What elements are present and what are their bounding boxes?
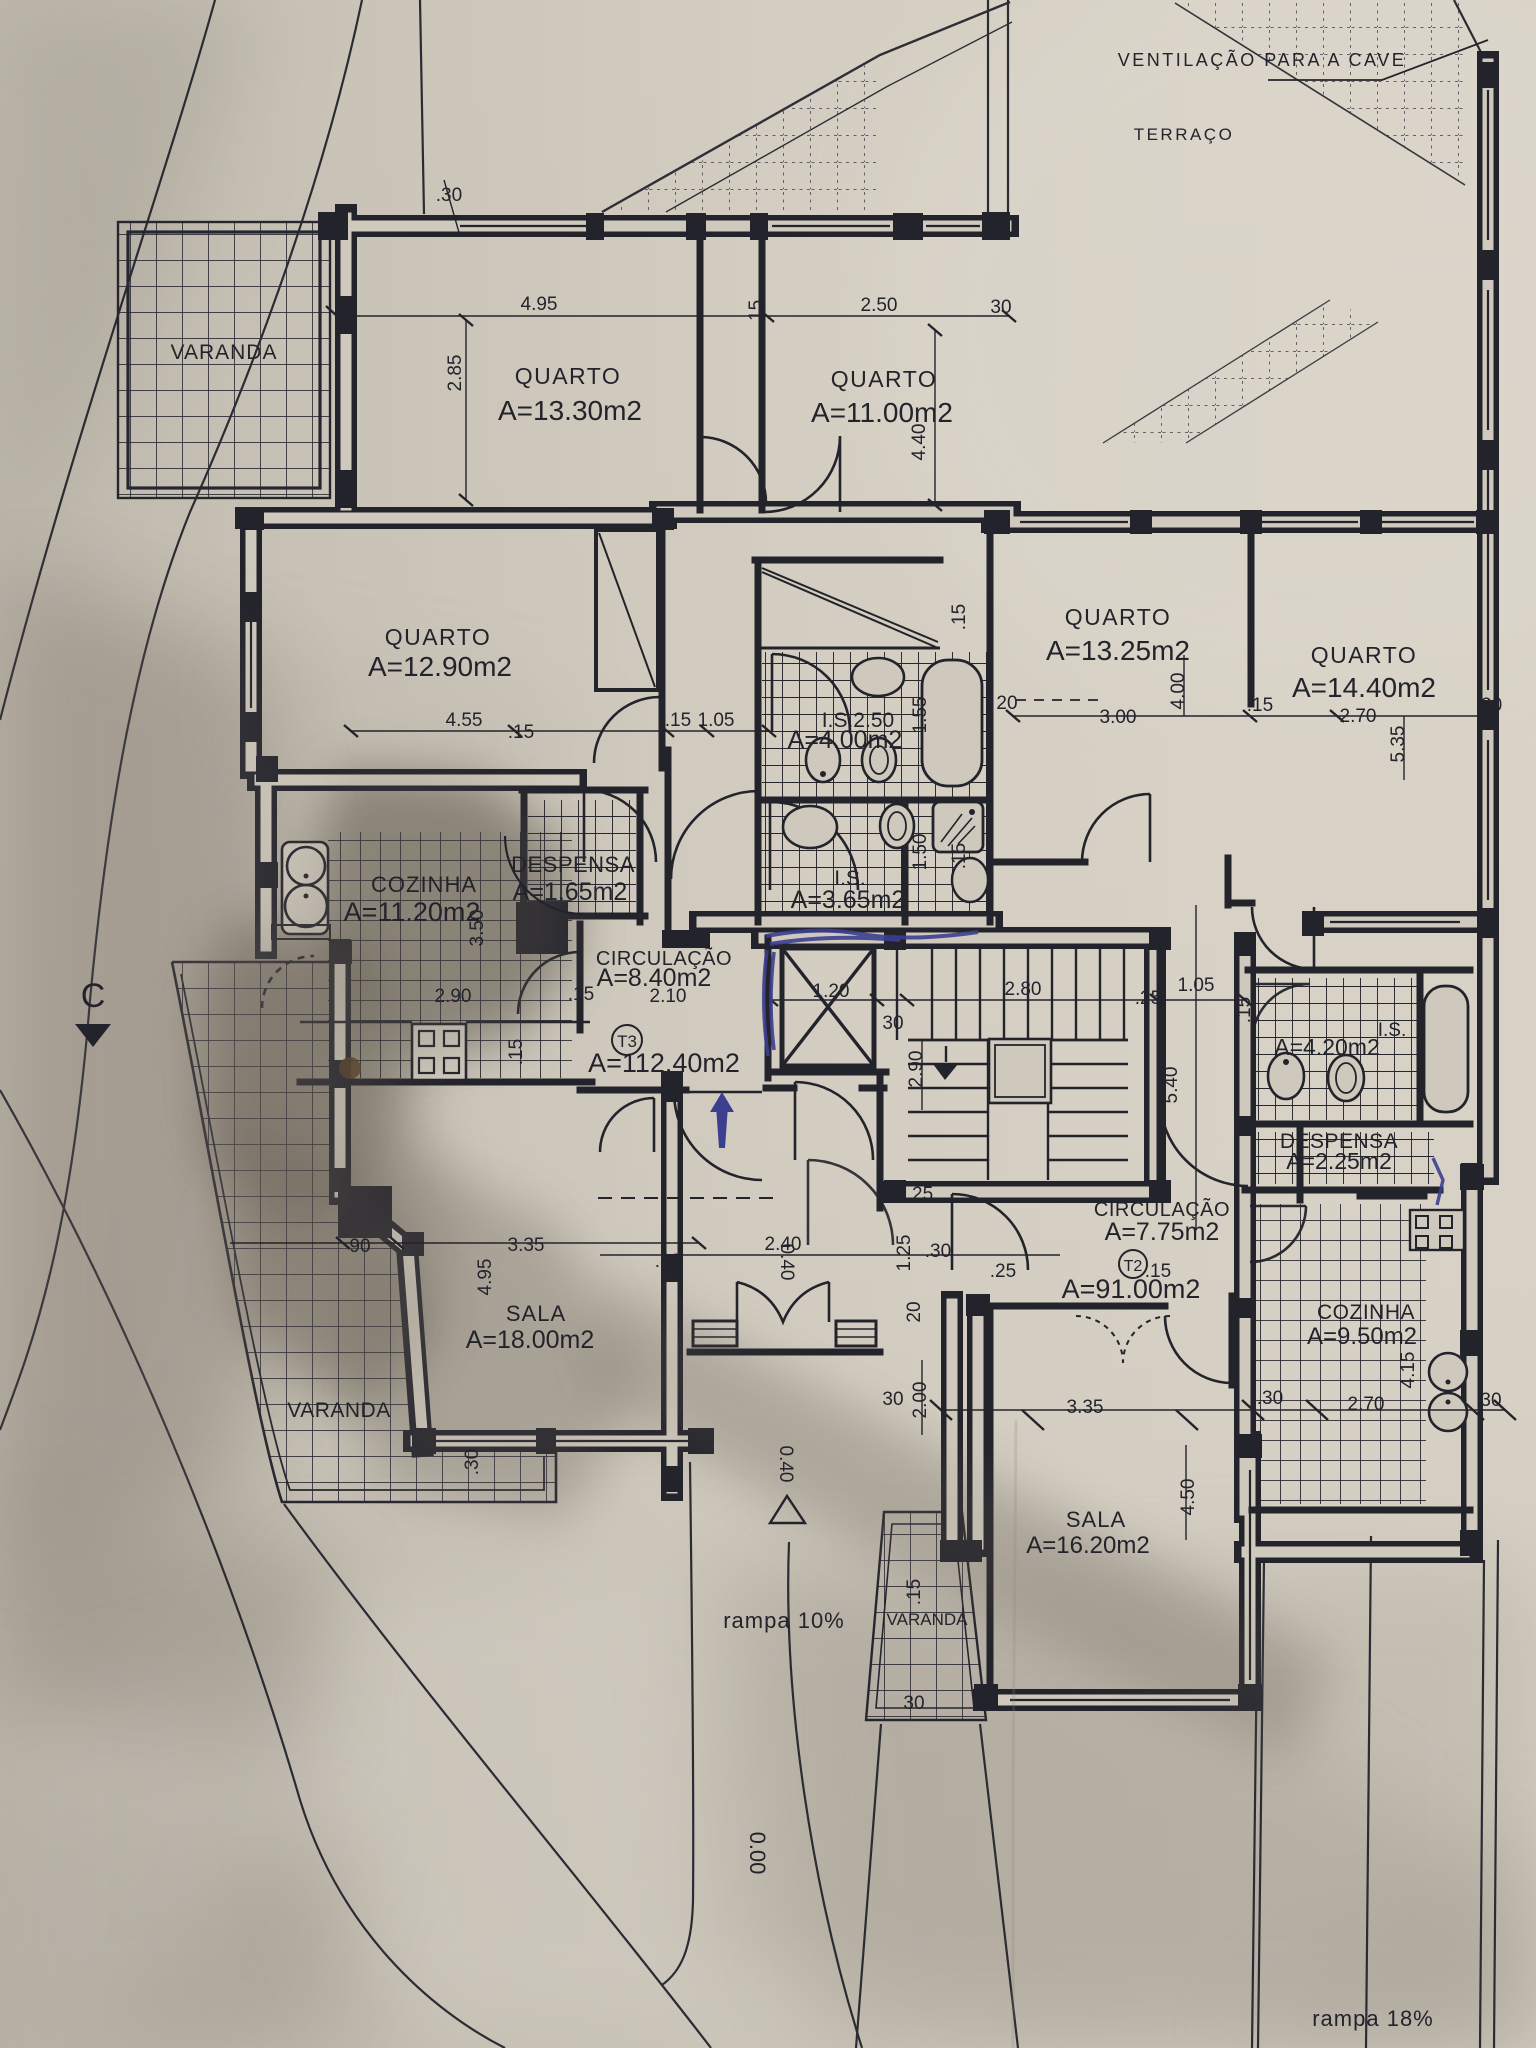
- svg-text:QUARTO: QUARTO: [515, 363, 622, 389]
- svg-text:rampa 18%: rampa 18%: [1312, 2006, 1434, 2031]
- svg-text:4.95: 4.95: [475, 1259, 496, 1296]
- svg-text:.15: .15: [568, 984, 594, 1005]
- svg-text:.30: .30: [925, 1241, 951, 1262]
- svg-text:4.55: 4.55: [446, 710, 483, 731]
- svg-text:QUARTO: QUARTO: [385, 624, 492, 650]
- svg-text:0.40: 0.40: [775, 1446, 796, 1483]
- svg-text:A=12.90m2: A=12.90m2: [368, 651, 512, 682]
- svg-text:5.35: 5.35: [1388, 726, 1409, 763]
- svg-text:90: 90: [349, 1236, 370, 1257]
- svg-text:0.40: 0.40: [776, 1244, 797, 1281]
- svg-text:VARANDA: VARANDA: [287, 1399, 390, 1422]
- svg-text:A=112.40m2: A=112.40m2: [588, 1048, 740, 1078]
- svg-text:.25: .25: [990, 1261, 1016, 1282]
- svg-text:QUARTO: QUARTO: [831, 366, 938, 392]
- svg-text:5.40: 5.40: [1161, 1067, 1182, 1104]
- svg-text:30: 30: [882, 1389, 903, 1410]
- svg-text:1.20: 1.20: [813, 981, 850, 1002]
- svg-text:.25: .25: [907, 1184, 933, 1205]
- svg-text:VARANDA: VARANDA: [171, 341, 278, 364]
- svg-text:.30: .30: [1476, 695, 1502, 716]
- svg-text:TERRAÇO: TERRAÇO: [1134, 125, 1235, 144]
- svg-text:0.00: 0.00: [745, 1832, 770, 1875]
- svg-text:COZINHA: COZINHA: [1317, 1301, 1415, 1324]
- svg-text:1.50: 1.50: [910, 834, 931, 871]
- svg-text:A=91.00m2: A=91.00m2: [1062, 1274, 1201, 1304]
- svg-text:2.70: 2.70: [1340, 706, 1377, 727]
- svg-text:A=3.65m2: A=3.65m2: [791, 886, 906, 914]
- svg-text:1.55: 1.55: [910, 697, 931, 734]
- svg-text:3.35: 3.35: [1067, 1397, 1104, 1418]
- svg-text:SALA: SALA: [506, 1301, 566, 1326]
- svg-text:VENTILAÇÃO PARA A CAVE: VENTILAÇÃO PARA A CAVE: [1118, 49, 1406, 70]
- svg-text:A=18.00m2: A=18.00m2: [466, 1326, 595, 1354]
- svg-text:.15: .15: [904, 1579, 925, 1605]
- svg-text:30: 30: [990, 297, 1011, 318]
- svg-text:A=11.20m2: A=11.20m2: [344, 897, 481, 927]
- svg-text:.15: .15: [508, 722, 534, 743]
- svg-text:2.70: 2.70: [1348, 1394, 1385, 1415]
- svg-text:A=14.40m2: A=14.40m2: [1292, 672, 1436, 703]
- svg-text:COZINHA: COZINHA: [371, 872, 477, 897]
- svg-text:2.50: 2.50: [861, 295, 898, 316]
- svg-text:A=4.00m2: A=4.00m2: [788, 726, 903, 754]
- svg-text:1.05: 1.05: [698, 710, 735, 731]
- svg-text:.30: .30: [1257, 1388, 1283, 1409]
- svg-text:.30: .30: [436, 185, 462, 206]
- svg-text:1.05: 1.05: [1178, 975, 1215, 996]
- svg-text:4.95: 4.95: [521, 294, 558, 315]
- svg-text:A=9.50m2: A=9.50m2: [1307, 1323, 1417, 1350]
- svg-text:4.00: 4.00: [1168, 673, 1189, 710]
- svg-text:.15: .15: [746, 300, 767, 326]
- svg-text:A=7.75m2: A=7.75m2: [1105, 1218, 1220, 1246]
- svg-text:4.15: 4.15: [1398, 1352, 1419, 1389]
- svg-text:.15: .15: [1234, 997, 1255, 1023]
- svg-text:30: 30: [903, 1693, 924, 1714]
- svg-text:.15: .15: [1247, 695, 1273, 716]
- svg-text:2.85: 2.85: [445, 355, 466, 392]
- svg-text:2.90: 2.90: [435, 986, 472, 1007]
- svg-text:2.00: 2.00: [910, 1382, 931, 1419]
- svg-text:A=13.25m2: A=13.25m2: [1046, 635, 1190, 666]
- svg-text:.15: .15: [949, 604, 970, 630]
- svg-text:.25: .25: [1135, 988, 1161, 1009]
- svg-text:2.80: 2.80: [1005, 979, 1042, 1000]
- svg-text:4.50: 4.50: [1178, 1479, 1199, 1516]
- svg-text:20: 20: [904, 1301, 925, 1322]
- svg-text:4.40: 4.40: [909, 424, 930, 461]
- svg-text:A=13.30m2: A=13.30m2: [498, 395, 642, 426]
- svg-text:1.25: 1.25: [894, 1235, 915, 1272]
- svg-text:.30: .30: [655, 1251, 681, 1272]
- svg-text:.15: .15: [506, 1039, 527, 1065]
- svg-text:I.S.: I.S.: [1378, 1020, 1407, 1041]
- svg-text:DESPENSA: DESPENSA: [511, 852, 635, 877]
- svg-text:A=16.20m2: A=16.20m2: [1026, 1532, 1149, 1559]
- svg-text:A=2.25m2: A=2.25m2: [1286, 1148, 1392, 1174]
- svg-text:3.35: 3.35: [508, 1235, 545, 1256]
- svg-text:20: 20: [996, 693, 1017, 714]
- svg-text:.15: .15: [949, 843, 970, 869]
- svg-text:3.50: 3.50: [467, 910, 488, 947]
- svg-text:3.00: 3.00: [1100, 707, 1137, 728]
- svg-text:.15: .15: [1145, 1261, 1171, 1282]
- svg-text:VARANDA: VARANDA: [887, 1610, 969, 1629]
- svg-text:30: 30: [1480, 1390, 1501, 1411]
- svg-text:2.90: 2.90: [906, 1051, 927, 1088]
- svg-text:rampa 10%: rampa 10%: [723, 1608, 845, 1633]
- svg-text:QUARTO: QUARTO: [1311, 642, 1418, 668]
- svg-text:.30: .30: [462, 1449, 483, 1475]
- svg-text:T2: T2: [1124, 1258, 1143, 1275]
- svg-text:2.10: 2.10: [650, 986, 687, 1007]
- svg-text:A=11.00m2: A=11.00m2: [811, 397, 953, 428]
- svg-text:C: C: [81, 977, 106, 1015]
- svg-text:QUARTO: QUARTO: [1065, 604, 1172, 630]
- svg-text:A=4.20m2: A=4.20m2: [1274, 1034, 1380, 1060]
- svg-text:30: 30: [882, 1013, 903, 1034]
- svg-text:.15: .15: [665, 710, 691, 731]
- svg-text:SALA: SALA: [1066, 1507, 1126, 1532]
